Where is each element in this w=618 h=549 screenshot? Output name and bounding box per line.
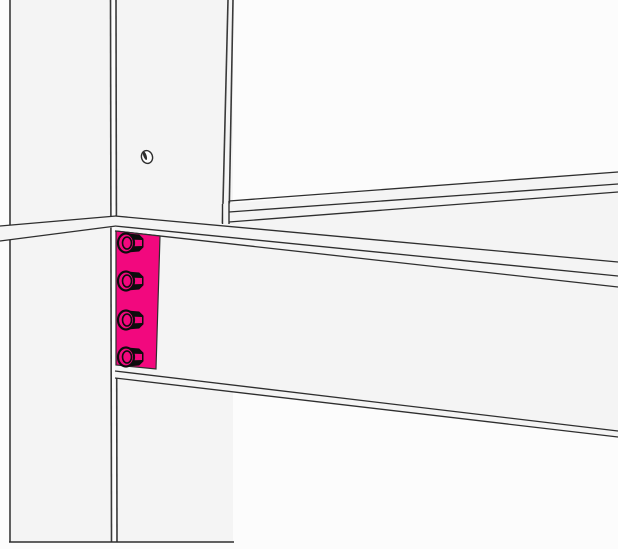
cad-viewport[interactable] xyxy=(0,0,618,549)
column-edge-flange-inner[interactable] xyxy=(111,0,112,542)
model-canvas[interactable] xyxy=(0,0,618,549)
bolt-3[interactable] xyxy=(118,311,143,330)
bolt-1[interactable] xyxy=(118,234,143,253)
bolt-4[interactable] xyxy=(118,348,143,367)
bolt-2[interactable] xyxy=(118,272,143,291)
column-left-flange-face[interactable] xyxy=(10,0,111,542)
